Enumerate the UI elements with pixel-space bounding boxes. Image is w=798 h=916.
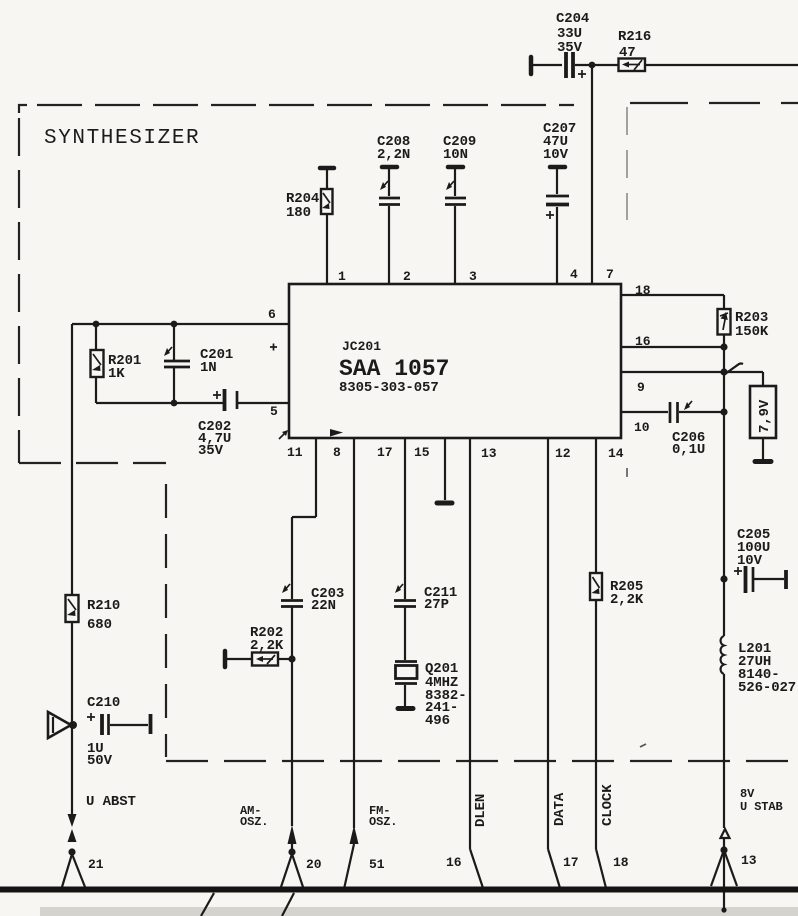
svg-text:17: 17 [377,445,393,460]
svg-text:11: 11 [287,445,303,460]
svg-text:17: 17 [563,855,579,870]
svg-text:2,2N: 2,2N [377,147,410,163]
svg-text:51: 51 [369,857,385,872]
svg-text:18: 18 [613,855,629,870]
svg-text:4: 4 [570,267,578,282]
svg-text:3: 3 [469,269,477,284]
svg-text:496: 496 [425,713,450,729]
svg-text:13: 13 [741,853,757,868]
svg-text:180: 180 [286,205,311,221]
svg-text:DATA: DATA [552,792,568,826]
svg-text:JC201: JC201 [342,339,381,354]
svg-text:7: 7 [606,267,614,282]
svg-text:12: 12 [555,446,571,461]
svg-text:10V: 10V [737,553,763,569]
svg-text:150K: 150K [735,324,769,340]
svg-text:680: 680 [87,617,112,633]
svg-text:CLOCK: CLOCK [600,784,616,826]
svg-text:R210: R210 [87,598,120,614]
svg-text:OSZ.: OSZ. [369,815,397,829]
svg-text:8V: 8V [740,787,755,801]
svg-text:5: 5 [270,404,278,419]
svg-text:10N: 10N [443,147,468,163]
svg-text:10: 10 [634,420,650,435]
svg-text:7,9V: 7,9V [757,399,773,433]
svg-text:35V: 35V [198,443,224,459]
svg-text:50V: 50V [87,753,113,769]
svg-text:8: 8 [333,445,341,460]
svg-text:U ABST: U ABST [86,794,136,810]
svg-text:15: 15 [414,445,430,460]
svg-text:C204: C204 [556,11,589,27]
svg-text:DLEN: DLEN [473,794,489,827]
svg-text:C210: C210 [87,695,120,711]
svg-text:20: 20 [306,857,322,872]
svg-text:0,1U: 0,1U [672,442,705,458]
svg-text:27P: 27P [424,597,449,613]
svg-text:2,2K: 2,2K [610,592,644,608]
svg-text:526-027: 526-027 [738,680,796,696]
svg-text:U STAB: U STAB [740,800,783,814]
svg-text:1: 1 [338,269,346,284]
svg-text:R216: R216 [618,29,651,45]
svg-text:1K: 1K [108,366,125,382]
svg-text:22N: 22N [311,598,336,614]
svg-text:1N: 1N [200,360,217,376]
svg-text:9: 9 [637,380,645,395]
svg-text:16: 16 [446,855,462,870]
svg-text:6: 6 [268,307,276,322]
svg-text:OSZ.: OSZ. [240,815,268,829]
svg-text:2: 2 [403,269,411,284]
svg-text:14: 14 [608,446,624,461]
svg-text:13: 13 [481,446,497,461]
svg-text:21: 21 [88,857,104,872]
svg-text:2,2K: 2,2K [250,638,284,654]
svg-text:SAA 1057: SAA 1057 [339,356,449,382]
svg-text:SYNTHESIZER: SYNTHESIZER [44,127,200,150]
svg-text:47: 47 [619,45,636,61]
svg-text:10V: 10V [543,147,569,163]
svg-text:35V: 35V [557,40,583,56]
svg-text:8305-303-057: 8305-303-057 [339,380,439,396]
